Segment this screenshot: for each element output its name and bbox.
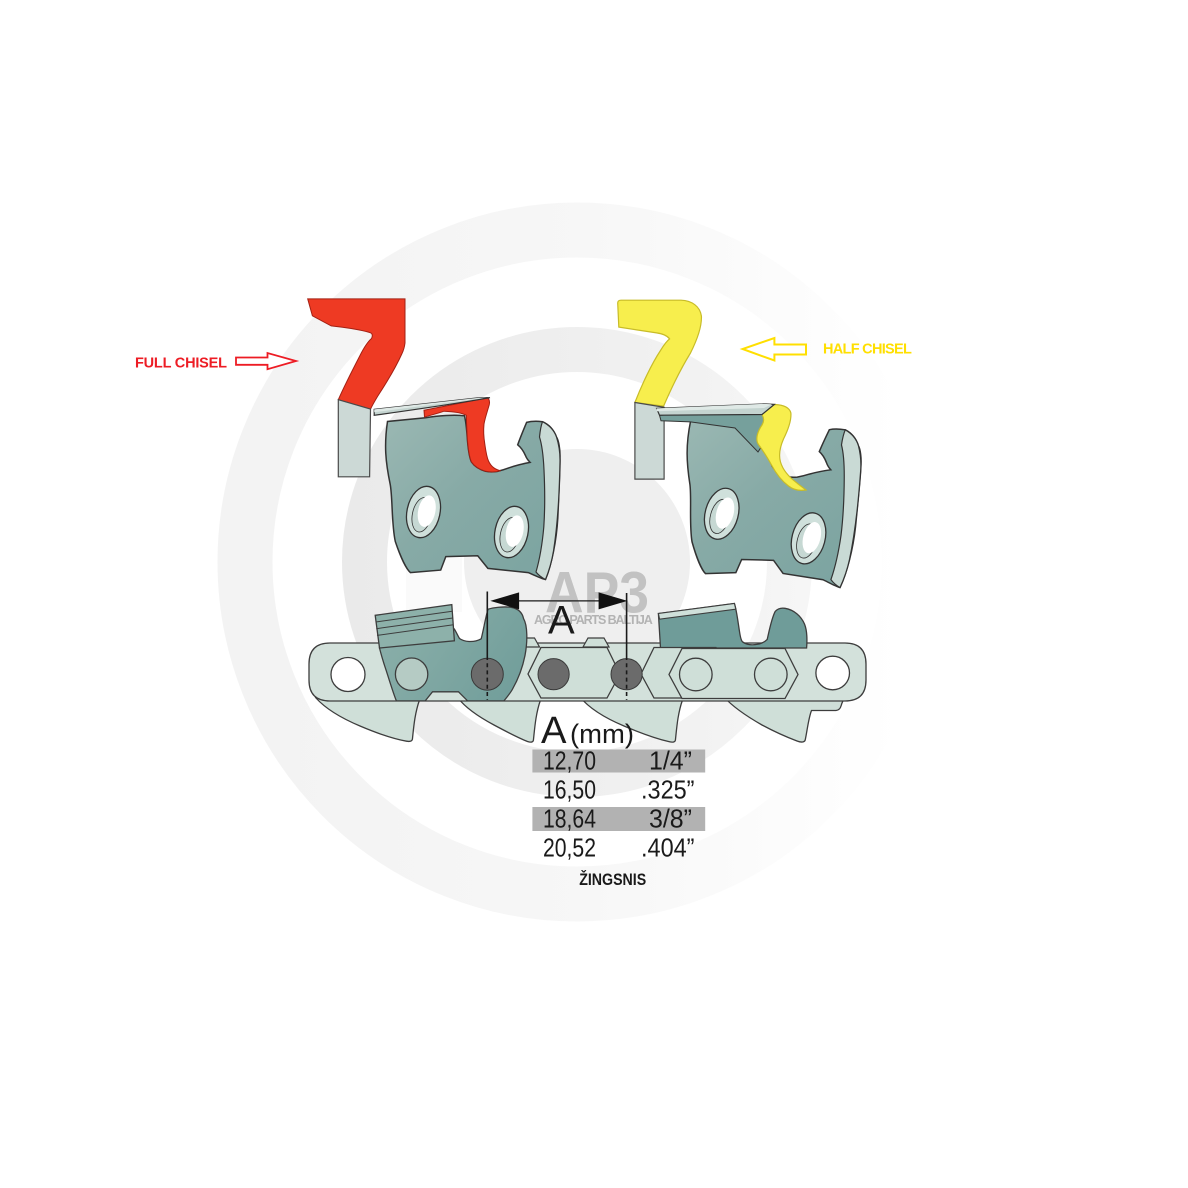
svg-text:(mm): (mm) [570,719,634,749]
svg-text:1/4”: 1/4” [649,746,692,776]
svg-text:16,50: 16,50 [543,775,596,805]
svg-text:.325”: .325” [641,775,695,805]
svg-text:A: A [548,599,575,643]
svg-text:12,70: 12,70 [543,746,596,776]
svg-text:ŽINGSNIS: ŽINGSNIS [579,870,646,889]
svg-text:FULL CHISEL: FULL CHISEL [135,356,227,372]
svg-text:20,52: 20,52 [543,833,596,863]
svg-text:.404”: .404” [641,833,695,863]
svg-text:18,64: 18,64 [543,804,596,834]
svg-text:HALF CHISEL: HALF CHISEL [823,342,912,358]
svg-text:3/8”: 3/8” [649,804,692,834]
